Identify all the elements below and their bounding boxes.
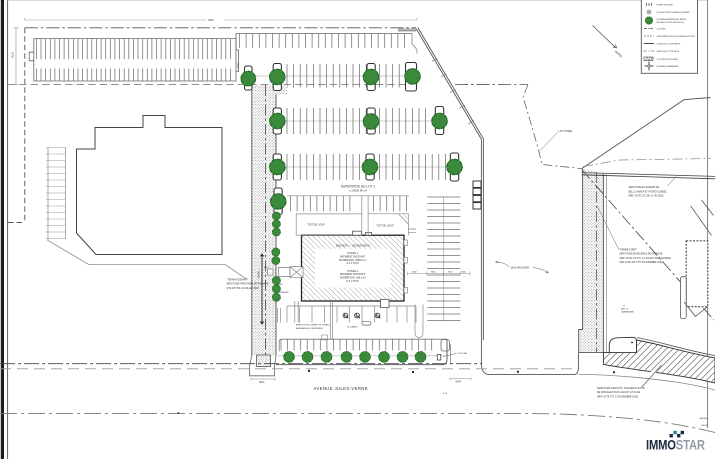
svg-text:BORNE TROUVEE: BORNE TROUVEE — [657, 5, 674, 7]
svg-text:5050-5070 — 150 RUE ARCH: 5050-5070 — 150 RUE ARCH — [336, 244, 370, 247]
svg-text:5 X 2.75 PI: 5 X 2.75 PI — [347, 280, 360, 283]
svg-text:POTEAU HYDRO-QUEBEC EXISTANT: POTEAU HYDRO-QUEBEC EXISTANT — [657, 11, 691, 14]
svg-text:9144: 9144 — [456, 381, 462, 384]
svg-text:IMMOSTAR: IMMOSTAR — [646, 437, 705, 452]
svg-text:TOIT DE LOUP: TOIT DE LOUP — [307, 224, 325, 227]
svg-text:BELL CANADA ET HYDRO-QUEBEC: BELL CANADA ET HYDRO-QUEBEC — [629, 190, 668, 193]
svg-text:TERRASSE: TERRASSE — [278, 291, 289, 294]
svg-text:TOIT DE LOUP: TOIT DE LOUP — [376, 225, 394, 228]
svg-text:9144: 9144 — [208, 18, 214, 22]
svg-text:AIRES POUR CHARIOTS (VRAC): AIRES POUR CHARIOTS (VRAC) — [296, 324, 330, 327]
svg-text:± 13000.00 m²: ± 13000.00 m² — [349, 189, 367, 193]
svg-text:7500: 7500 — [448, 272, 454, 274]
svg-text:(REF. ACTE 175 775, 12 JUILLET: (REF. ACTE 175 775, 12 JUILLET 2002, MOD… — [620, 257, 672, 260]
svg-text:DE PASSAGE POUR L'EGOUT ET PLU: DE PASSAGE POUR L'EGOUT ET PLUIE — [597, 391, 641, 394]
svg-text:25 CASES: 25 CASES — [347, 326, 358, 329]
svg-text:NOUVEAU LAMPADAIRE: NOUVEAU LAMPADAIRE — [657, 65, 680, 68]
svg-text:AVENUE JULES-VERNE: AVENUE JULES-VERNE — [314, 386, 368, 391]
svg-text:LIMITE DE LOT PROJETE: LIMITE DE LOT PROJETE — [657, 51, 680, 53]
svg-text:(REF. ACTE 770, T3 NOVEMBRE 20: (REF. ACTE 770, T3 NOVEMBRE 2002) — [597, 395, 638, 398]
svg-text:76.20: 76.20 — [12, 51, 15, 58]
svg-text:7500: 7500 — [431, 272, 437, 274]
svg-text:QUAI MAGASINS: QUAI MAGASINS — [511, 266, 530, 269]
svg-text:"FERME JORET": "FERME JORET" — [620, 249, 638, 251]
svg-text:CLOTURE: CLOTURE — [657, 28, 667, 30]
svg-text:AMENAGE A CONFIRMER: AMENAGE A CONFIRMER — [296, 327, 323, 330]
svg-text:ABRI: ABRI — [278, 283, 283, 286]
svg-text:JULES: JULES — [701, 425, 708, 427]
svg-text:(REF. ACTE 173 108, 11-06-2002: (REF. ACTE 173 108, 11-06-2002) — [629, 195, 664, 198]
svg-text:3000: 3000 — [259, 381, 265, 384]
svg-text:"TERRAIN DEVANT": "TERRAIN DEVANT" — [227, 279, 249, 282]
svg-text:SERVITUDE EN FAVEUR DE: SERVITUDE EN FAVEUR DE — [629, 186, 660, 189]
svg-text:BAT. 12: BAT. 12 — [621, 308, 629, 311]
svg-text:2 X 2.75 PI: 2 X 2.75 PI — [347, 262, 360, 265]
svg-text:6000: 6000 — [412, 272, 418, 274]
svg-text:PYLONE: PYLONE — [458, 353, 467, 355]
svg-text:3000: 3000 — [238, 62, 240, 68]
svg-text:CLOTURE (PROPOSEE): CLOTURE (PROPOSEE) — [657, 59, 679, 61]
svg-text:LAMPADAIRE: LAMPADAIRE — [621, 311, 634, 314]
svg-text:QTE 178 752 10 JUILLET 2002: QTE 178 752 10 JUILLET 2002 — [227, 288, 260, 290]
svg-text:SERVITUDE MUNICIPALE DE PASSAG: SERVITUDE MUNICIPALE DE PASSAGE — [620, 253, 663, 256]
svg-text:LOT HOREL: LOT HOREL — [559, 130, 574, 133]
svg-text:SERVITUDE D'EGOUTS, D'AQUEDUC: SERVITUDE D'EGOUTS, D'AQUEDUC ET DE — [597, 387, 645, 390]
svg-text:NOUVEAUX ARBRES A PLANTER: NOUVEAUX ARBRES A PLANTER — [657, 18, 687, 21]
svg-text:45000: 45000 — [258, 271, 261, 278]
svg-text:LIGNE DE LOT EXISTANTE: LIGNE DE LOT EXISTANTE — [657, 42, 682, 45]
svg-text:LIMITE/SERVITUDE DE NON-ACCES: LIMITE/SERVITUDE DE NON-ACCES PROP. — [657, 35, 696, 38]
svg-text:AVENUE: AVENUE — [700, 417, 709, 420]
svg-text:SERVITUDE PROPOSEE DE PASSAGE: SERVITUDE PROPOSEE DE PASSAGE — [227, 283, 269, 286]
svg-text:6000: 6000 — [461, 272, 467, 274]
svg-text:EN RACK (6 FEUILLES EN 20L): EN RACK (6 FEUILLES EN 20L) — [657, 21, 685, 24]
svg-text:PAR ACTE 180 778 T3 NOVEMBRE 2: PAR ACTE 180 778 T3 NOVEMBRE 2002) — [620, 261, 664, 264]
